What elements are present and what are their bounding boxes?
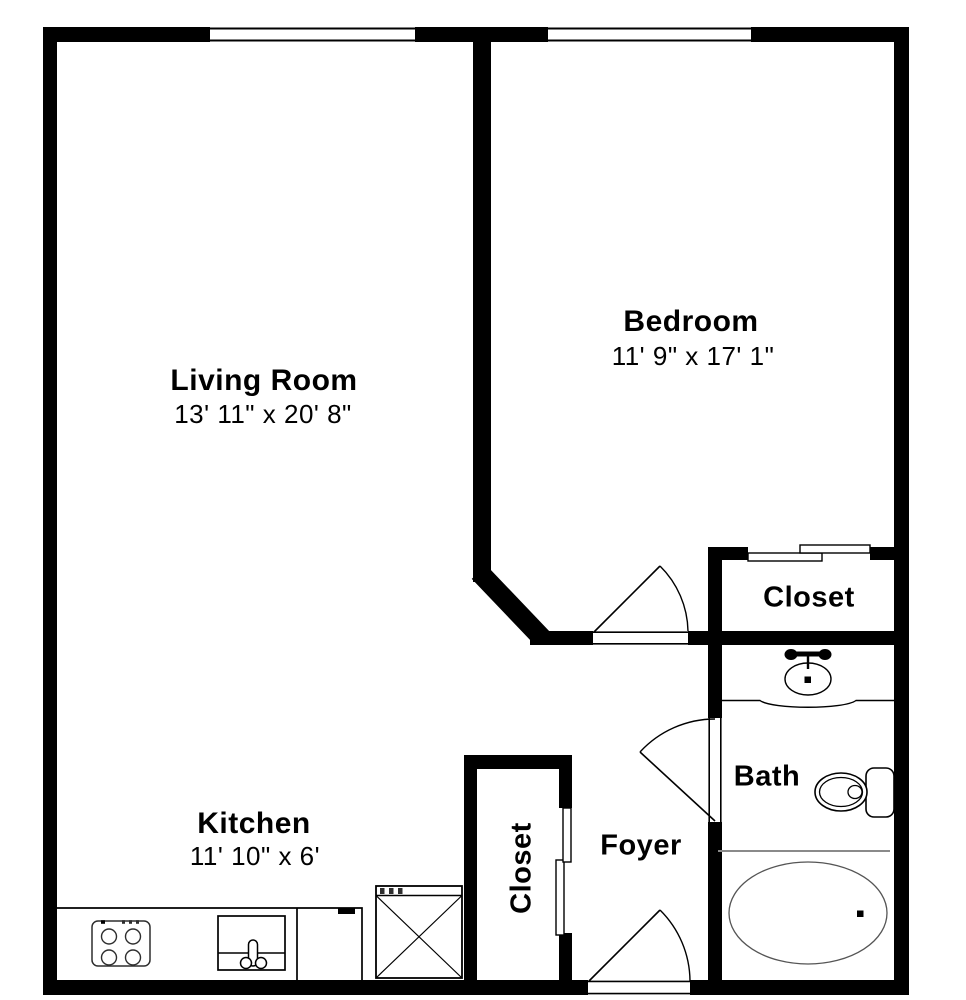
bath-door-arc [640, 719, 715, 752]
bath-door [640, 718, 722, 822]
entry-door-leaf [589, 910, 660, 981]
floor-plan-drawing [0, 0, 966, 1000]
toilet-icon [815, 768, 894, 817]
wall-bottom-right [690, 980, 909, 995]
wall-right [894, 27, 909, 995]
wall-foyer-closet-left [464, 755, 477, 988]
bedroom-door [593, 566, 688, 645]
wall-bottom-left [43, 980, 588, 995]
wall-bedroom-bottom-left [530, 631, 593, 645]
bath-door-leaf [640, 752, 715, 821]
wall-closet-left [708, 547, 722, 645]
bedroom-window [548, 27, 751, 42]
living-room-dimensions: 13' 11" x 20' 8" [174, 401, 352, 427]
entry-door-arc [660, 910, 690, 981]
wall-top-right [751, 27, 909, 42]
wall-top-left [43, 27, 210, 42]
bath-label: Bath [734, 763, 800, 792]
wall-left [43, 27, 57, 995]
wall-living-bedroom [473, 42, 491, 582]
wall-foyer-closet-top [464, 755, 572, 769]
kitchen-sink-icon [218, 916, 285, 970]
wall-foyer-closet-right-bottom [559, 933, 572, 988]
living-room-window [210, 27, 415, 42]
wall-foyer-bath-top [708, 645, 722, 718]
kitchen-dimensions: 11' 10" x 6' [190, 843, 320, 869]
bedroom-door-arc [660, 566, 688, 631]
refrigerator-icon [376, 886, 462, 978]
bedroom-closet-sliding-doors [748, 545, 870, 561]
living-room-label: Living Room [170, 366, 357, 396]
bedroom-dimensions: 11' 9" x 17' 1" [612, 343, 775, 369]
wall-diagonal [479, 572, 542, 638]
foyer-closet-label: Closet [508, 822, 537, 914]
bathroom-vanity [720, 701, 894, 708]
bedroom-door-leaf [594, 566, 660, 632]
foyer-label: Foyer [600, 832, 681, 861]
wall-foyer-closet-right-top [559, 755, 572, 808]
entry-door [588, 910, 690, 995]
wall-foyer-bath-bottom [708, 822, 722, 995]
bathroom-sink-icon [785, 649, 832, 695]
bedroom-closet-label: Closet [763, 584, 855, 613]
wall-top-mid [415, 27, 548, 42]
kitchen-label: Kitchen [197, 809, 311, 839]
foyer-closet-sliding-doors [556, 808, 571, 935]
wall-closet-top-right [870, 547, 894, 560]
bedroom-label: Bedroom [623, 307, 758, 337]
dishwasher-icon [338, 908, 355, 914]
bathtub-icon [729, 862, 887, 964]
wall-closet-top-left [708, 547, 748, 560]
floor-plan: Living Room 13' 11" x 20' 8" Bedroom 11'… [0, 0, 966, 1000]
stove-icon [92, 920, 150, 966]
